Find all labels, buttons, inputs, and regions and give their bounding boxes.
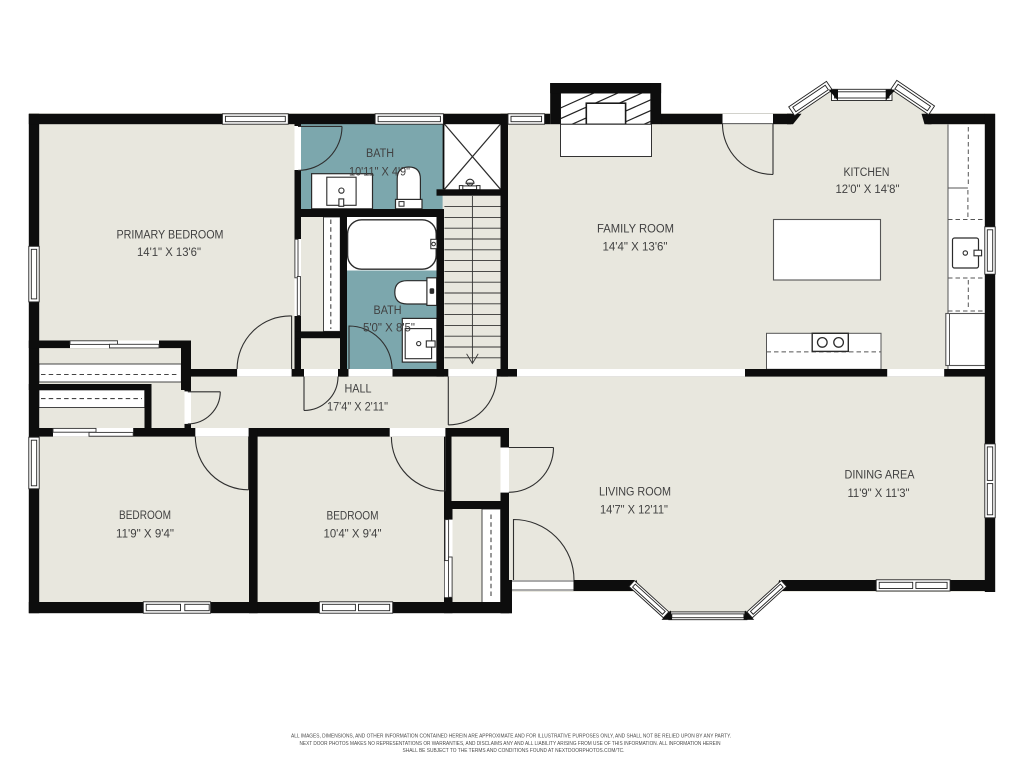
- svg-text:14'7" X 12'11": 14'7" X 12'11": [600, 502, 668, 516]
- svg-text:LIVING ROOM: LIVING ROOM: [599, 484, 671, 498]
- svg-text:HALL: HALL: [345, 381, 372, 395]
- svg-text:10'11" X 4'9": 10'11" X 4'9": [349, 165, 410, 179]
- svg-text:11'9" X 11'3": 11'9" X 11'3": [848, 486, 910, 500]
- svg-text:KITCHEN: KITCHEN: [844, 165, 890, 179]
- svg-text:5'0" X 8'5": 5'0" X 8'5": [363, 320, 415, 334]
- svg-text:BEDROOM: BEDROOM: [327, 508, 379, 522]
- svg-text:BEDROOM: BEDROOM: [119, 508, 171, 522]
- svg-text:SHALL BE SUBJECT TO THE TERMS: SHALL BE SUBJECT TO THE TERMS AND CONDIT…: [403, 748, 625, 754]
- svg-text:FAMILY ROOM: FAMILY ROOM: [597, 221, 674, 235]
- svg-text:BATH: BATH: [374, 303, 402, 317]
- svg-text:ALL IMAGES, DIMENSIONS, AND OT: ALL IMAGES, DIMENSIONS, AND OTHER INFORM…: [291, 734, 731, 740]
- svg-text:10'4" X 9'4": 10'4" X 9'4": [324, 526, 382, 540]
- svg-text:14'1" X 13'6": 14'1" X 13'6": [137, 245, 201, 259]
- svg-text:BATH: BATH: [366, 146, 394, 160]
- svg-text:DINING AREA: DINING AREA: [845, 467, 916, 481]
- svg-text:17'4" X 2'11": 17'4" X 2'11": [327, 399, 388, 413]
- svg-text:PRIMARY BEDROOM: PRIMARY BEDROOM: [117, 227, 224, 241]
- svg-text:12'0" X 14'8": 12'0" X 14'8": [836, 182, 900, 196]
- svg-text:14'4" X 13'6": 14'4" X 13'6": [603, 239, 668, 253]
- svg-text:NEXT DOOR PHOTOS MAKES NO REPR: NEXT DOOR PHOTOS MAKES NO REPRESENTATION…: [300, 741, 721, 747]
- svg-text:11'9" X 9'4": 11'9" X 9'4": [116, 526, 174, 540]
